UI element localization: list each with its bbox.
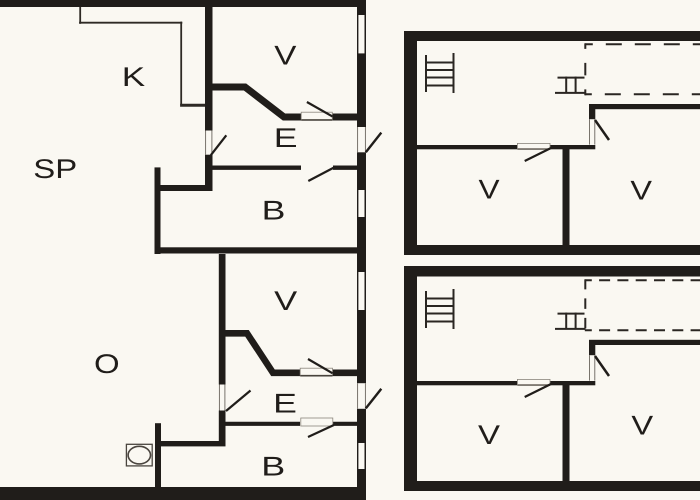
svg-text:V: V xyxy=(274,41,296,71)
svg-text:V: V xyxy=(274,286,297,316)
svg-text:V: V xyxy=(478,420,500,450)
svg-text:K: K xyxy=(122,62,145,92)
svg-text:V: V xyxy=(478,174,499,204)
svg-text:E: E xyxy=(274,123,298,153)
svg-text:V: V xyxy=(631,411,653,441)
svg-text:B: B xyxy=(261,452,285,482)
svg-text:SP: SP xyxy=(33,154,77,184)
svg-text:B: B xyxy=(262,196,286,226)
svg-text:O: O xyxy=(94,349,120,379)
svg-text:E: E xyxy=(273,389,297,419)
svg-text:V: V xyxy=(630,176,652,206)
